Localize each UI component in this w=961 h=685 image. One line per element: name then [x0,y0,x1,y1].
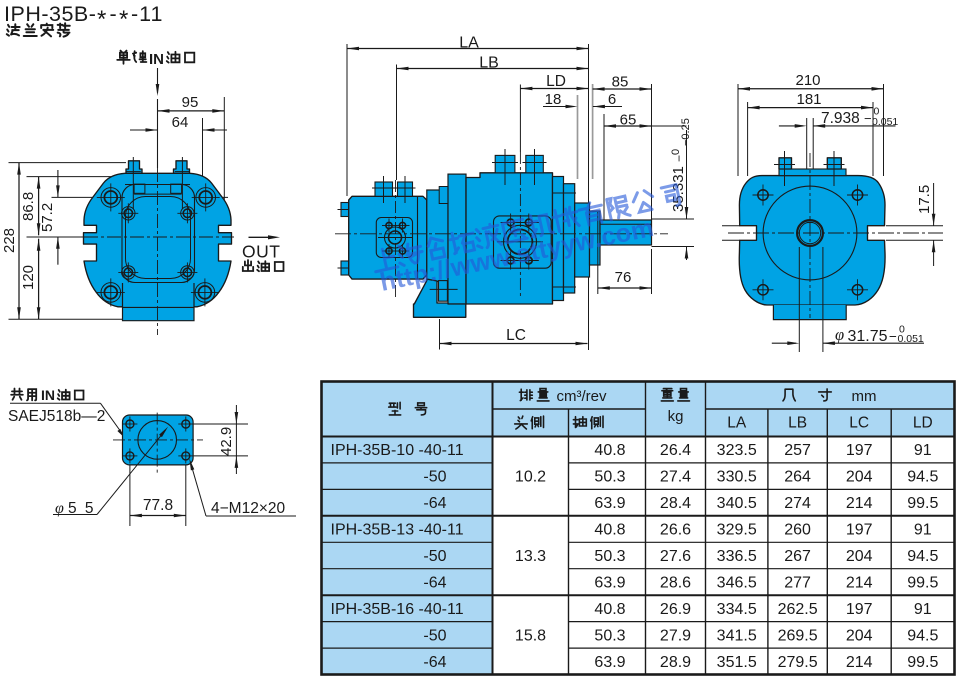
svg-text:204: 204 [846,469,873,486]
svg-text:197: 197 [846,442,873,459]
svg-text:57.2: 57.2 [39,203,56,232]
svg-text:346.5: 346.5 [717,574,757,591]
svg-text:214: 214 [846,495,873,512]
svg-text:15.8: 15.8 [515,627,546,644]
svg-text:269.5: 269.5 [778,627,818,644]
svg-text:−: − [889,329,897,344]
svg-text:267: 267 [784,548,811,565]
svg-text:26.4: 26.4 [660,442,691,459]
svg-text:99.5: 99.5 [907,495,938,512]
svg-text:50.3: 50.3 [594,469,625,486]
svg-text:0.051: 0.051 [898,333,924,345]
svg-text:50.3: 50.3 [594,627,625,644]
svg-text:LA: LA [459,35,479,52]
svg-text:7.938: 7.938 [821,110,860,127]
svg-text:94.5: 94.5 [907,548,938,565]
svg-text:274: 274 [784,495,811,512]
svg-text:42.9: 42.9 [218,427,235,456]
svg-text:65: 65 [620,112,637,129]
svg-text:0.051: 0.051 [872,116,898,128]
svg-text:120: 120 [20,265,37,290]
svg-text:336.5: 336.5 [717,548,757,565]
svg-text:LC: LC [849,415,869,432]
svg-text:210: 210 [795,72,820,89]
svg-text:28.4: 28.4 [660,495,691,512]
svg-text:63.9: 63.9 [594,574,625,591]
svg-text:LB: LB [479,55,499,72]
svg-text:94.5: 94.5 [907,627,938,644]
svg-text:40.8: 40.8 [594,601,625,618]
svg-text:94.5: 94.5 [907,469,938,486]
svg-text:351.5: 351.5 [717,654,757,671]
svg-text:17.5: 17.5 [916,185,933,214]
svg-text:181: 181 [796,91,821,108]
svg-text:26.9: 26.9 [660,601,691,618]
svg-text:IN: IN [41,387,55,403]
svg-text:330.5: 330.5 [717,469,757,486]
svg-text:91: 91 [914,442,932,459]
svg-text:26.6: 26.6 [660,522,691,539]
svg-text:SAEJ518b—2: SAEJ518b—2 [8,408,105,425]
svg-text:IN: IN [149,51,164,68]
svg-text:13.3: 13.3 [515,548,546,565]
svg-text:−: − [864,111,872,126]
svg-text:334.5: 334.5 [717,601,757,618]
svg-text:40.8: 40.8 [594,522,625,539]
svg-text:-64: -64 [423,574,446,591]
svg-text:IPH-35B-13 -40-11: IPH-35B-13 -40-11 [331,522,464,539]
svg-text:214: 214 [846,574,873,591]
svg-text:-64: -64 [423,495,446,512]
svg-text:228: 228 [1,228,18,253]
svg-text:99.5: 99.5 [907,654,938,671]
svg-text:85: 85 [612,74,629,91]
svg-text:99.5: 99.5 [907,574,938,591]
svg-text:197: 197 [846,601,873,618]
svg-text:28.6: 28.6 [660,574,691,591]
svg-text:-11: -11 [131,2,163,26]
svg-text:*: * [119,6,128,33]
svg-text:φ: φ [55,500,64,517]
svg-text:LB: LB [788,415,807,432]
svg-text:260: 260 [784,522,811,539]
svg-text:IPH-35B-16 -40-11: IPH-35B-16 -40-11 [331,601,464,618]
svg-text:6: 6 [608,91,616,108]
svg-text:IPH-35B-10 -40-11: IPH-35B-10 -40-11 [331,442,464,459]
svg-text:262.5: 262.5 [778,601,818,618]
svg-text:−0.25: −0.25 [680,118,692,146]
svg-text:LC: LC [506,327,526,344]
svg-text:LD: LD [546,73,566,90]
svg-text:IPH-35B-: IPH-35B- [4,2,96,26]
svg-text:340.5: 340.5 [717,495,757,512]
svg-text:40.8: 40.8 [594,442,625,459]
svg-text:*: * [97,6,106,33]
svg-text:204: 204 [846,627,873,644]
svg-text:28.9: 28.9 [660,654,691,671]
svg-text:LA: LA [727,415,747,432]
svg-text:4−M12×20: 4−M12×20 [211,500,285,517]
svg-text:323.5: 323.5 [717,442,757,459]
svg-text:31.75: 31.75 [848,328,888,345]
svg-text:341.5: 341.5 [717,627,757,644]
svg-text:5 5: 5 5 [68,500,96,517]
svg-text:264: 264 [784,469,811,486]
svg-text:-50: -50 [423,469,446,486]
svg-text:329.5: 329.5 [717,522,757,539]
svg-text:27.9: 27.9 [660,627,691,644]
svg-text:18: 18 [545,91,562,108]
svg-text:10.2: 10.2 [515,469,546,486]
svg-text:279.5: 279.5 [778,654,818,671]
svg-text:86.8: 86.8 [20,192,37,221]
svg-text:63.9: 63.9 [594,495,625,512]
svg-text:mm: mm [852,388,877,405]
svg-text:95: 95 [182,94,199,111]
svg-text:OUT: OUT [242,242,280,262]
svg-text:76: 76 [615,269,632,286]
svg-text:63.9: 63.9 [594,654,625,671]
svg-text:-50: -50 [423,627,446,644]
svg-text:27.4: 27.4 [660,469,691,486]
svg-text:27.6: 27.6 [660,548,691,565]
svg-text:91: 91 [914,522,932,539]
svg-text:214: 214 [846,654,873,671]
svg-text:77.8: 77.8 [143,497,173,514]
svg-text:64: 64 [172,114,189,131]
svg-text:50.3: 50.3 [594,548,625,565]
svg-text:-50: -50 [423,548,446,565]
svg-text:257: 257 [784,442,811,459]
svg-text:LD: LD [913,415,933,432]
svg-text:-64: -64 [423,654,446,671]
svg-text:kg: kg [668,408,684,425]
svg-text:204: 204 [846,548,873,565]
svg-text:-: - [110,2,117,26]
svg-text:φ: φ [835,325,844,344]
svg-text:197: 197 [846,522,873,539]
svg-text:91: 91 [914,601,932,618]
svg-text:277: 277 [784,574,811,591]
svg-text:cm³/rev: cm³/rev [557,388,607,405]
